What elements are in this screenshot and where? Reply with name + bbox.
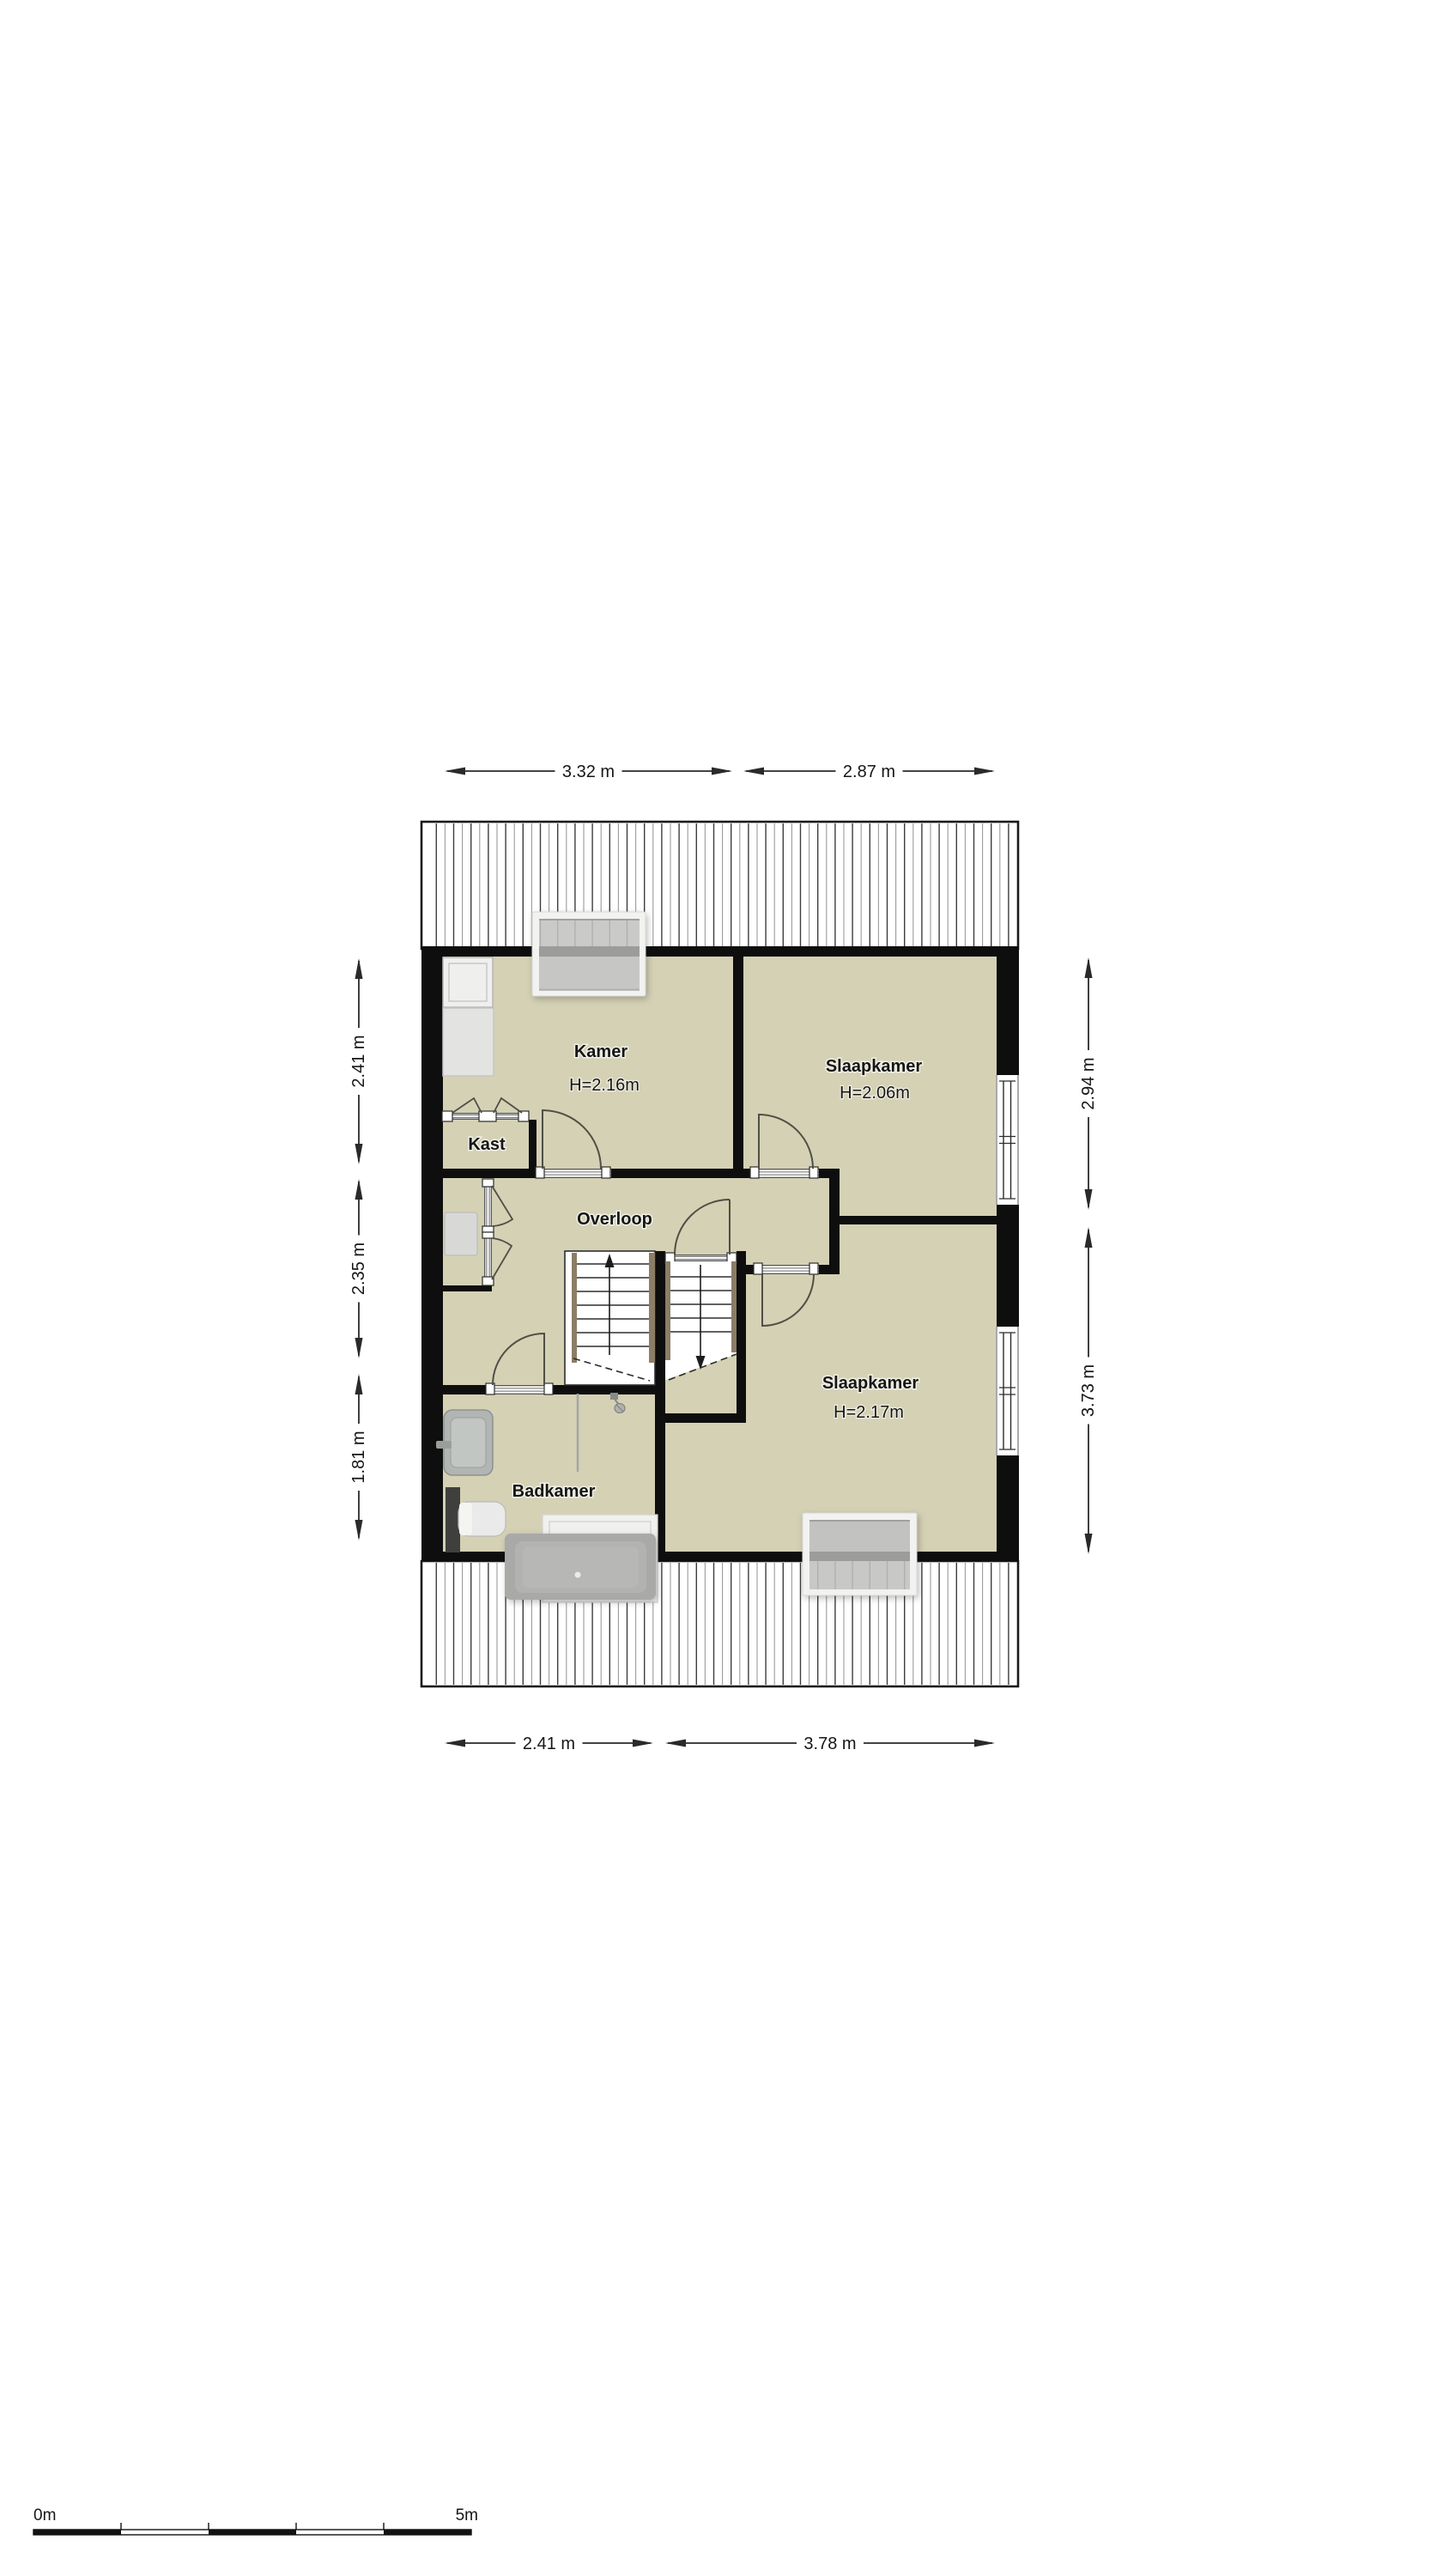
svg-text:Slaapkamer: Slaapkamer	[822, 1374, 919, 1393]
svg-text:H=2.16m: H=2.16m	[569, 1076, 640, 1095]
svg-text:Overloop: Overloop	[577, 1210, 652, 1229]
svg-text:H=2.06m: H=2.06m	[840, 1084, 910, 1103]
svg-text:Slaapkamer: Slaapkamer	[826, 1057, 923, 1076]
svg-text:1.81 m: 1.81 m	[349, 1431, 368, 1483]
svg-text:2.41 m: 2.41 m	[523, 1735, 575, 1753]
svg-text:0m: 0m	[33, 2506, 56, 2524]
svg-text:3.32 m: 3.32 m	[562, 762, 615, 781]
svg-text:Kast: Kast	[468, 1135, 506, 1154]
svg-text:H=2.17m: H=2.17m	[834, 1403, 904, 1422]
svg-text:2.41 m: 2.41 m	[349, 1035, 368, 1087]
svg-text:2.94 m: 2.94 m	[1079, 1057, 1098, 1109]
svg-text:Kamer: Kamer	[574, 1042, 627, 1061]
svg-text:5m: 5m	[456, 2506, 478, 2524]
svg-text:Badkamer: Badkamer	[512, 1482, 596, 1501]
svg-text:2.87 m: 2.87 m	[843, 762, 895, 781]
svg-text:3.73 m: 3.73 m	[1079, 1364, 1098, 1417]
svg-text:3.78 m: 3.78 m	[803, 1735, 856, 1753]
svg-text:2.35 m: 2.35 m	[349, 1242, 368, 1295]
